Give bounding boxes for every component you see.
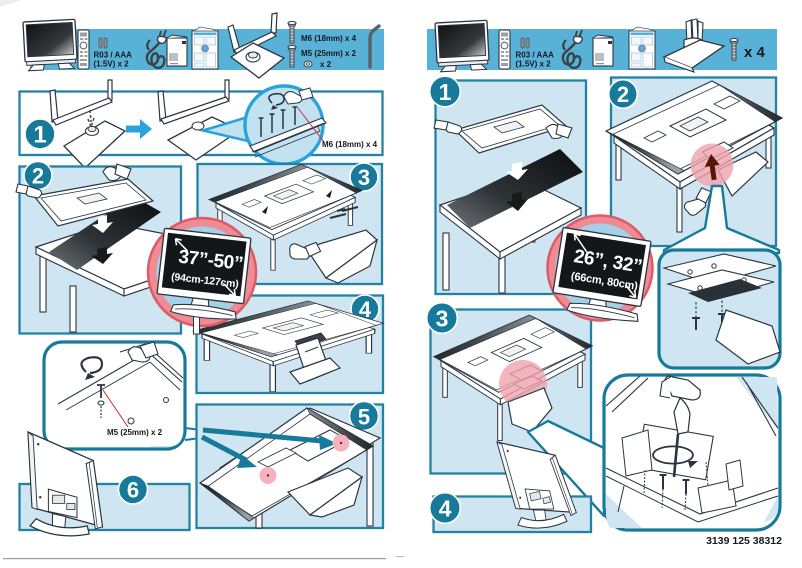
svg-text:3: 3 [436, 306, 449, 332]
svg-text:2: 2 [32, 164, 44, 189]
svg-text:4: 4 [439, 496, 452, 522]
svg-text:(1.5V) x 2: (1.5V) x 2 [94, 60, 130, 69]
svg-text:M5 (25mm) x 2: M5 (25mm) x 2 [301, 49, 357, 58]
svg-text:3: 3 [358, 165, 370, 190]
svg-text:R03 / AAA: R03 / AAA [94, 51, 133, 60]
svg-text:2: 2 [617, 82, 629, 107]
svg-text:M6 (18mm) x 4: M6 (18mm) x 4 [322, 140, 378, 149]
svg-text:1: 1 [33, 122, 46, 149]
svg-text:(1.5V) x 2: (1.5V) x 2 [516, 60, 552, 69]
svg-text:R03 / AAA: R03 / AAA [516, 51, 555, 60]
svg-text:x 2: x 2 [320, 60, 332, 69]
svg-text:3139 125 38312: 3139 125 38312 [706, 535, 782, 547]
svg-text:M5 (25mm) x 2: M5 (25mm) x 2 [107, 428, 163, 437]
svg-text:1: 1 [439, 79, 452, 105]
svg-text:M6 (18mm) x 4: M6 (18mm) x 4 [301, 34, 357, 43]
svg-text:6: 6 [127, 478, 139, 503]
svg-text:5: 5 [358, 405, 370, 430]
svg-text:x 4: x 4 [744, 44, 766, 61]
